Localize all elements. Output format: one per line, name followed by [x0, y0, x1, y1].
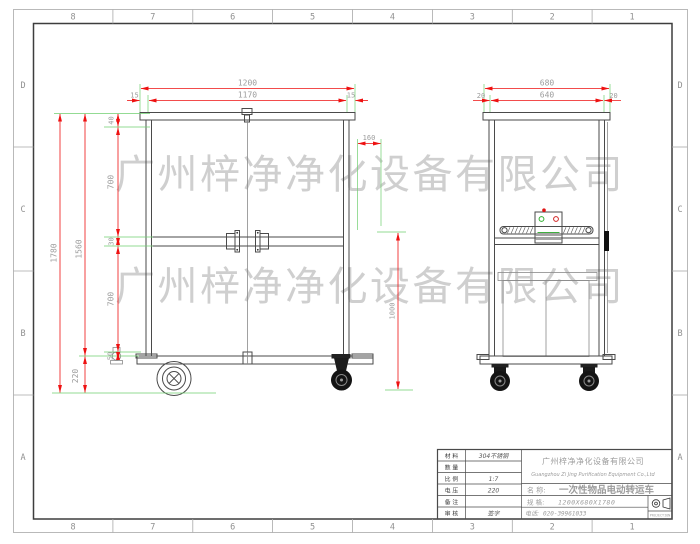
dim-wheel-height: 220: [71, 369, 80, 384]
dim-overall-height: 1780: [50, 243, 59, 262]
zone-row-label: C: [20, 205, 25, 215]
dim-front-width-inner: 1170: [238, 91, 257, 100]
dim-mid-rail: 30: [108, 237, 116, 245]
dim-front-margin-left: 15: [130, 92, 138, 100]
side-caster-wheel: [490, 364, 510, 391]
tb-product-name: 一次性物品电动转运车: [559, 484, 655, 496]
watermark-text: 广州梓净净化设备有限公司: [115, 152, 625, 198]
dim-front-width-outer: 1200: [238, 79, 257, 88]
zone-row-label: D: [20, 81, 25, 91]
zone-row-label: C: [677, 205, 682, 215]
side-caster-wheel: [579, 364, 599, 391]
side-top-bar: [483, 113, 610, 121]
dim-side-margin-right: 20: [609, 92, 617, 100]
front-caster-wheel: [331, 354, 352, 391]
dim-side-width-inner: 640: [540, 91, 555, 100]
dim-front-margin-right: 15: [347, 92, 355, 100]
tb-row-value: 签字: [487, 510, 500, 518]
tb-company-name-en: Guangzhou Zi Jing Purification Equipment…: [531, 472, 655, 478]
tb-company-name-cn: 广州梓净净化设备有限公司: [542, 456, 644, 466]
projection-symbol-icon: [652, 498, 670, 509]
zone-row-label: D: [677, 81, 682, 91]
bottom-end-cap: [477, 355, 489, 360]
zone-col-label: 2: [550, 13, 555, 23]
zone-col-label: 5: [310, 523, 315, 533]
drive-wheel: [157, 362, 191, 396]
zone-col-label: 3: [470, 523, 475, 533]
dim-handle-offset: 160: [363, 134, 376, 142]
zone-col-label: 4: [390, 523, 395, 533]
zone-row-label: A: [20, 453, 25, 463]
dimension-labels: 1200 1170 15 15 680 640 20 20 1780 1560 …: [50, 79, 618, 384]
zone-col-label: 4: [390, 13, 395, 23]
tb-row-label: 审 核: [445, 510, 459, 518]
tb-row-label: 材 料: [445, 452, 459, 460]
tb-row-label: 电 压: [445, 487, 459, 495]
zone-col-label: 2: [550, 523, 555, 533]
side-mid-rail: [495, 238, 600, 245]
tb-spec-value: 1200X680X1780: [558, 499, 615, 507]
drawing-sheet: 8 7 6 5 4 3 2 1 8 7 6 5 4 3 2 1 D C B A …: [0, 0, 700, 544]
dim-side-width-outer: 680: [540, 79, 555, 88]
dim-top-cap: 40: [108, 116, 116, 124]
zone-col-label: 7: [150, 13, 155, 23]
center-bracket: [243, 352, 252, 364]
zone-col-label: 1: [629, 523, 634, 533]
zone-col-label: 3: [470, 13, 475, 23]
tb-name-label: 名 称:: [527, 486, 546, 495]
zone-col-label: 8: [70, 523, 75, 533]
dim-body-height: 1560: [75, 239, 84, 258]
tb-phone-label: 电话:: [525, 510, 539, 518]
zone-row-label: B: [677, 329, 682, 339]
green-button-icon: [539, 217, 544, 222]
tb-row-label: 数 量: [445, 464, 459, 472]
dim-bottom-gap: 50: [107, 352, 115, 360]
top-latch: [242, 109, 252, 115]
door-hinge: [604, 231, 609, 251]
dimension-lines: [60, 89, 621, 393]
front-top-bar: [140, 113, 355, 121]
side-bottom-bar: [480, 356, 612, 364]
zone-col-label: 6: [230, 13, 235, 23]
zone-row-label: B: [20, 329, 25, 339]
watermark-text: 广州梓净净化设备有限公司: [115, 264, 625, 310]
zone-col-label: 6: [230, 523, 235, 533]
tb-row-value: 304不锈钢: [479, 452, 509, 460]
tb-row-value: 220: [488, 488, 500, 495]
title-block: 材 料 304不锈钢 数 量 比 例 1:7 电 压 220 备 注 审 核 签…: [438, 450, 673, 520]
dim-upper-panel: 700: [107, 175, 116, 190]
power-lamp-icon: [542, 208, 546, 212]
top-latch: [245, 115, 250, 122]
tb-spec-label: 规 格:: [527, 498, 544, 507]
zone-col-label: 5: [310, 13, 315, 23]
zone-col-label: 8: [70, 13, 75, 23]
tb-row-label: 备 注: [445, 498, 459, 506]
tb-row-label: 比 例: [445, 475, 459, 483]
zone-col-label: 1: [629, 13, 634, 23]
dim-handle-height: 1000: [389, 303, 397, 320]
dim-lower-panel: 700: [107, 292, 116, 307]
tb-row-value: 1:7: [489, 476, 499, 483]
zone-row-label: A: [677, 453, 682, 463]
zone-col-label: 7: [150, 523, 155, 533]
red-button-icon: [554, 217, 559, 222]
dim-side-margin-left: 20: [477, 92, 485, 100]
tb-projection-label: PROJECTION: [650, 514, 670, 518]
tb-phone-value: 020-39961033: [543, 511, 587, 518]
